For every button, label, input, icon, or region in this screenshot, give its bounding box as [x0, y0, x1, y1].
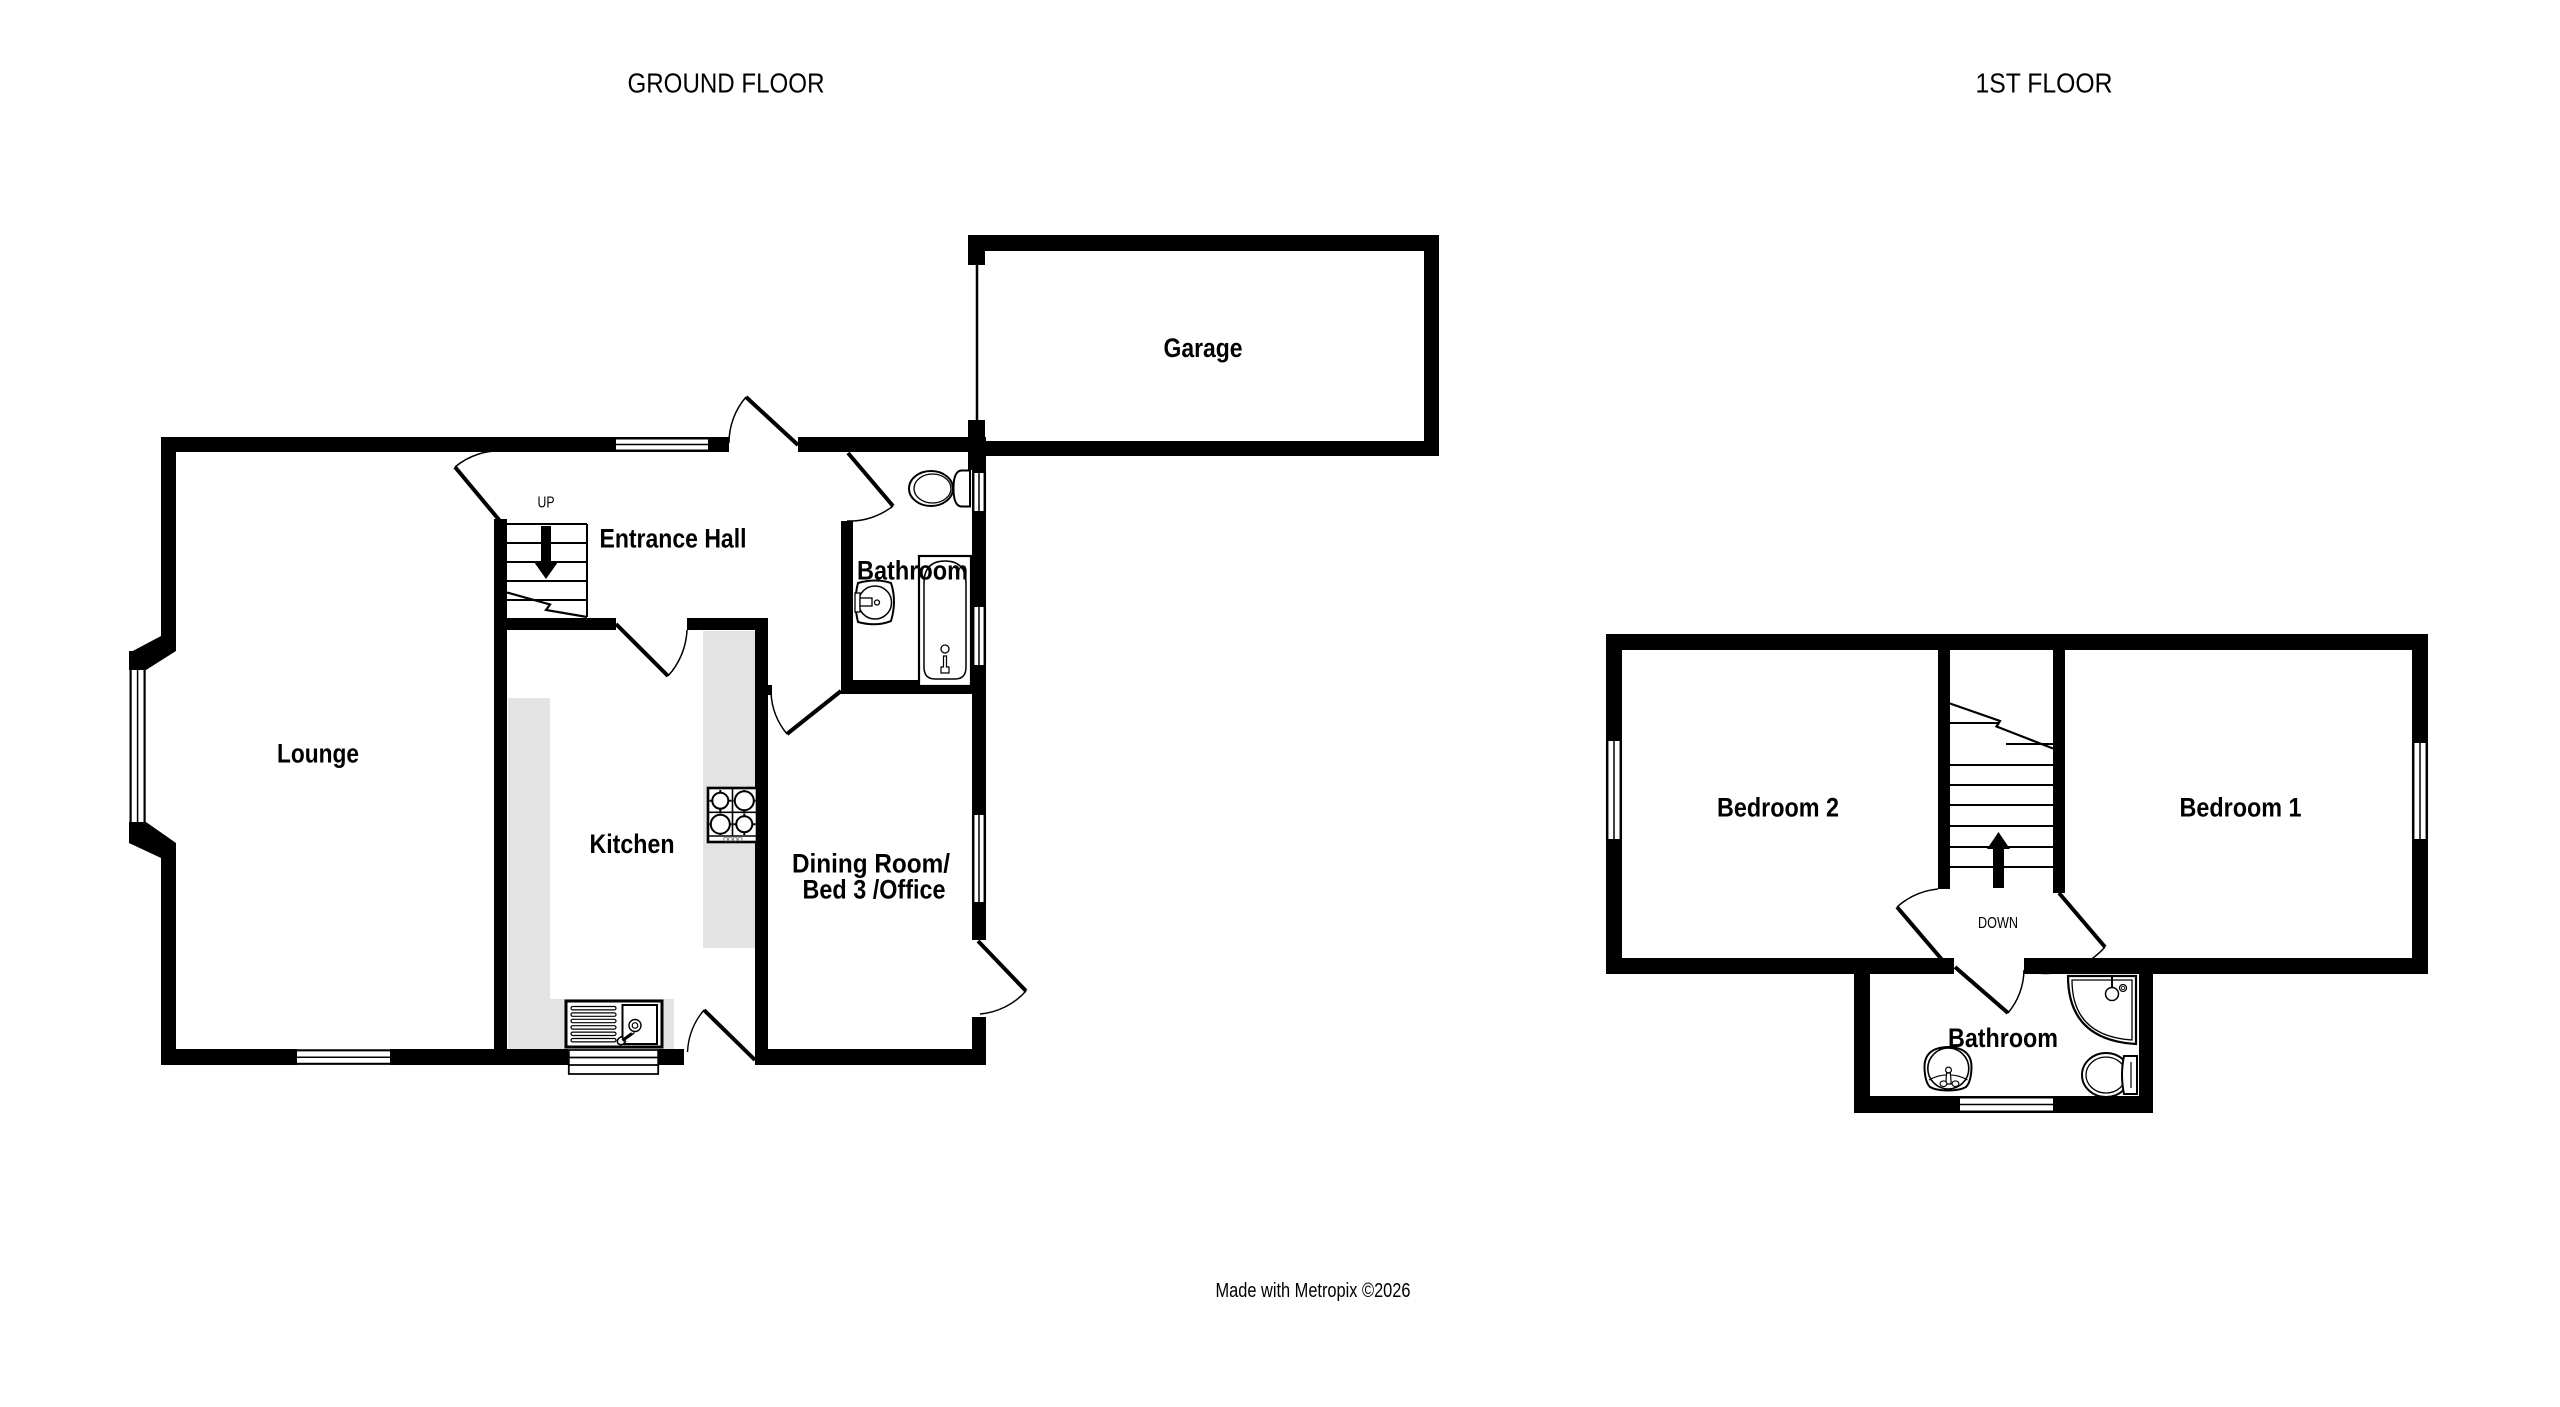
svg-text:Garage: Garage: [1164, 333, 1243, 363]
svg-text:Bedroom 1: Bedroom 1: [2180, 793, 2302, 823]
svg-text:Entrance Hall: Entrance Hall: [600, 524, 747, 554]
svg-text:Made with Metropix ©2026: Made with Metropix ©2026: [1216, 1280, 1411, 1302]
svg-text:Bed 3 /Office: Bed 3 /Office: [803, 875, 946, 905]
svg-text:UP: UP: [538, 495, 555, 512]
svg-text:GROUND FLOOR: GROUND FLOOR: [628, 68, 825, 99]
svg-text:DOWN: DOWN: [1978, 915, 2018, 932]
svg-text:Lounge: Lounge: [277, 739, 359, 769]
svg-text:1ST FLOOR: 1ST FLOOR: [1976, 68, 2113, 99]
svg-text:Kitchen: Kitchen: [590, 829, 675, 859]
svg-text:Bathroom: Bathroom: [1948, 1023, 2058, 1053]
svg-text:Bedroom 2: Bedroom 2: [1717, 793, 1839, 823]
svg-text:Bathroom: Bathroom: [857, 556, 968, 586]
